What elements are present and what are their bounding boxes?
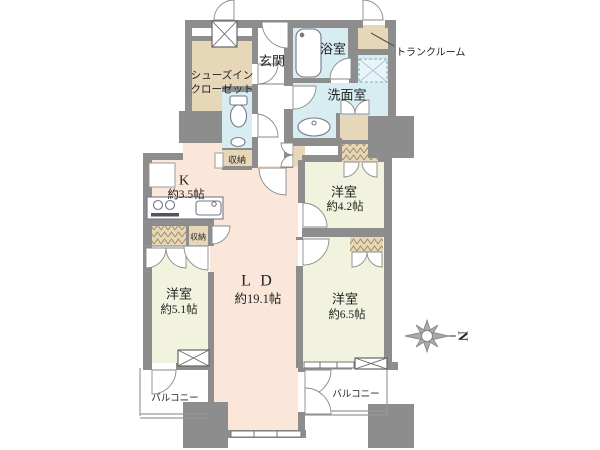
window-ld-south — [231, 431, 301, 437]
door-meter-box — [214, 0, 234, 20]
door-entrance — [262, 22, 288, 48]
door-trunk-room — [363, 0, 383, 20]
label-trunk-room: トランクルーム — [396, 47, 465, 59]
door-ld-balcony-bottom — [305, 388, 331, 414]
label-washroom: 洗面室 — [327, 88, 366, 103]
label-shoes-closet-2: クローゼット — [191, 84, 254, 96]
label-entrance: 玄関 — [259, 54, 285, 69]
label-room65-size: 約6.5帖 — [328, 307, 365, 321]
label-storage-kitchen: 収納 — [190, 232, 206, 242]
floor-plan: N シューズイン クローゼット 玄関 浴室 トランクルーム 洗面室 収納 収納 … — [0, 0, 600, 450]
fridge-space — [149, 163, 175, 187]
label-balcony-left: バルコニー — [151, 393, 198, 404]
window-65-south — [304, 362, 354, 368]
label-storage-hall: 収納 — [228, 154, 246, 165]
label-room65: 洋室 — [332, 292, 358, 307]
bathtub-icon — [296, 29, 321, 77]
door-toilet — [258, 114, 278, 137]
label-bathroom: 浴室 — [320, 42, 346, 57]
label-kitchen: K — [179, 174, 189, 189]
label-room51-size: 約5.1帖 — [160, 302, 197, 316]
label-balcony-right: バルコニー — [332, 389, 379, 400]
washroom-sink-icon — [298, 118, 330, 136]
door-hall-mini-bottom — [281, 155, 293, 167]
label-living-dining: L D — [241, 273, 275, 290]
vent-box — [355, 358, 387, 369]
compass-north-label: N — [455, 331, 470, 341]
closet-65-hatch — [350, 236, 383, 252]
closet-washroom — [340, 115, 370, 140]
label-shoes-closet-1: シューズイン — [191, 69, 253, 82]
pipe-space-box — [178, 350, 209, 366]
door-room51-balcony — [152, 370, 176, 394]
kitchen-sink-icon — [196, 201, 221, 215]
compass-hub — [422, 331, 433, 342]
compass: N — [405, 320, 470, 352]
door-hall-mini-top — [281, 143, 293, 155]
washing-machine-space — [359, 59, 387, 82]
label-kitchen-size: 約3.5帖 — [167, 187, 204, 201]
label-room42: 洋室 — [331, 185, 357, 200]
floor-plan-drawing: N シューズイン クローゼット 玄関 浴室 トランクルーム 洗面室 収納 収納 … — [0, 0, 600, 450]
storage-hall-door — [215, 153, 223, 168]
label-living-dining-size: 約19.1帖 — [235, 291, 282, 306]
label-room51: 洋室 — [166, 287, 192, 302]
closet-trunk — [357, 25, 390, 51]
label-room42-size: 約4.2帖 — [326, 199, 363, 213]
meter-box — [212, 21, 237, 47]
